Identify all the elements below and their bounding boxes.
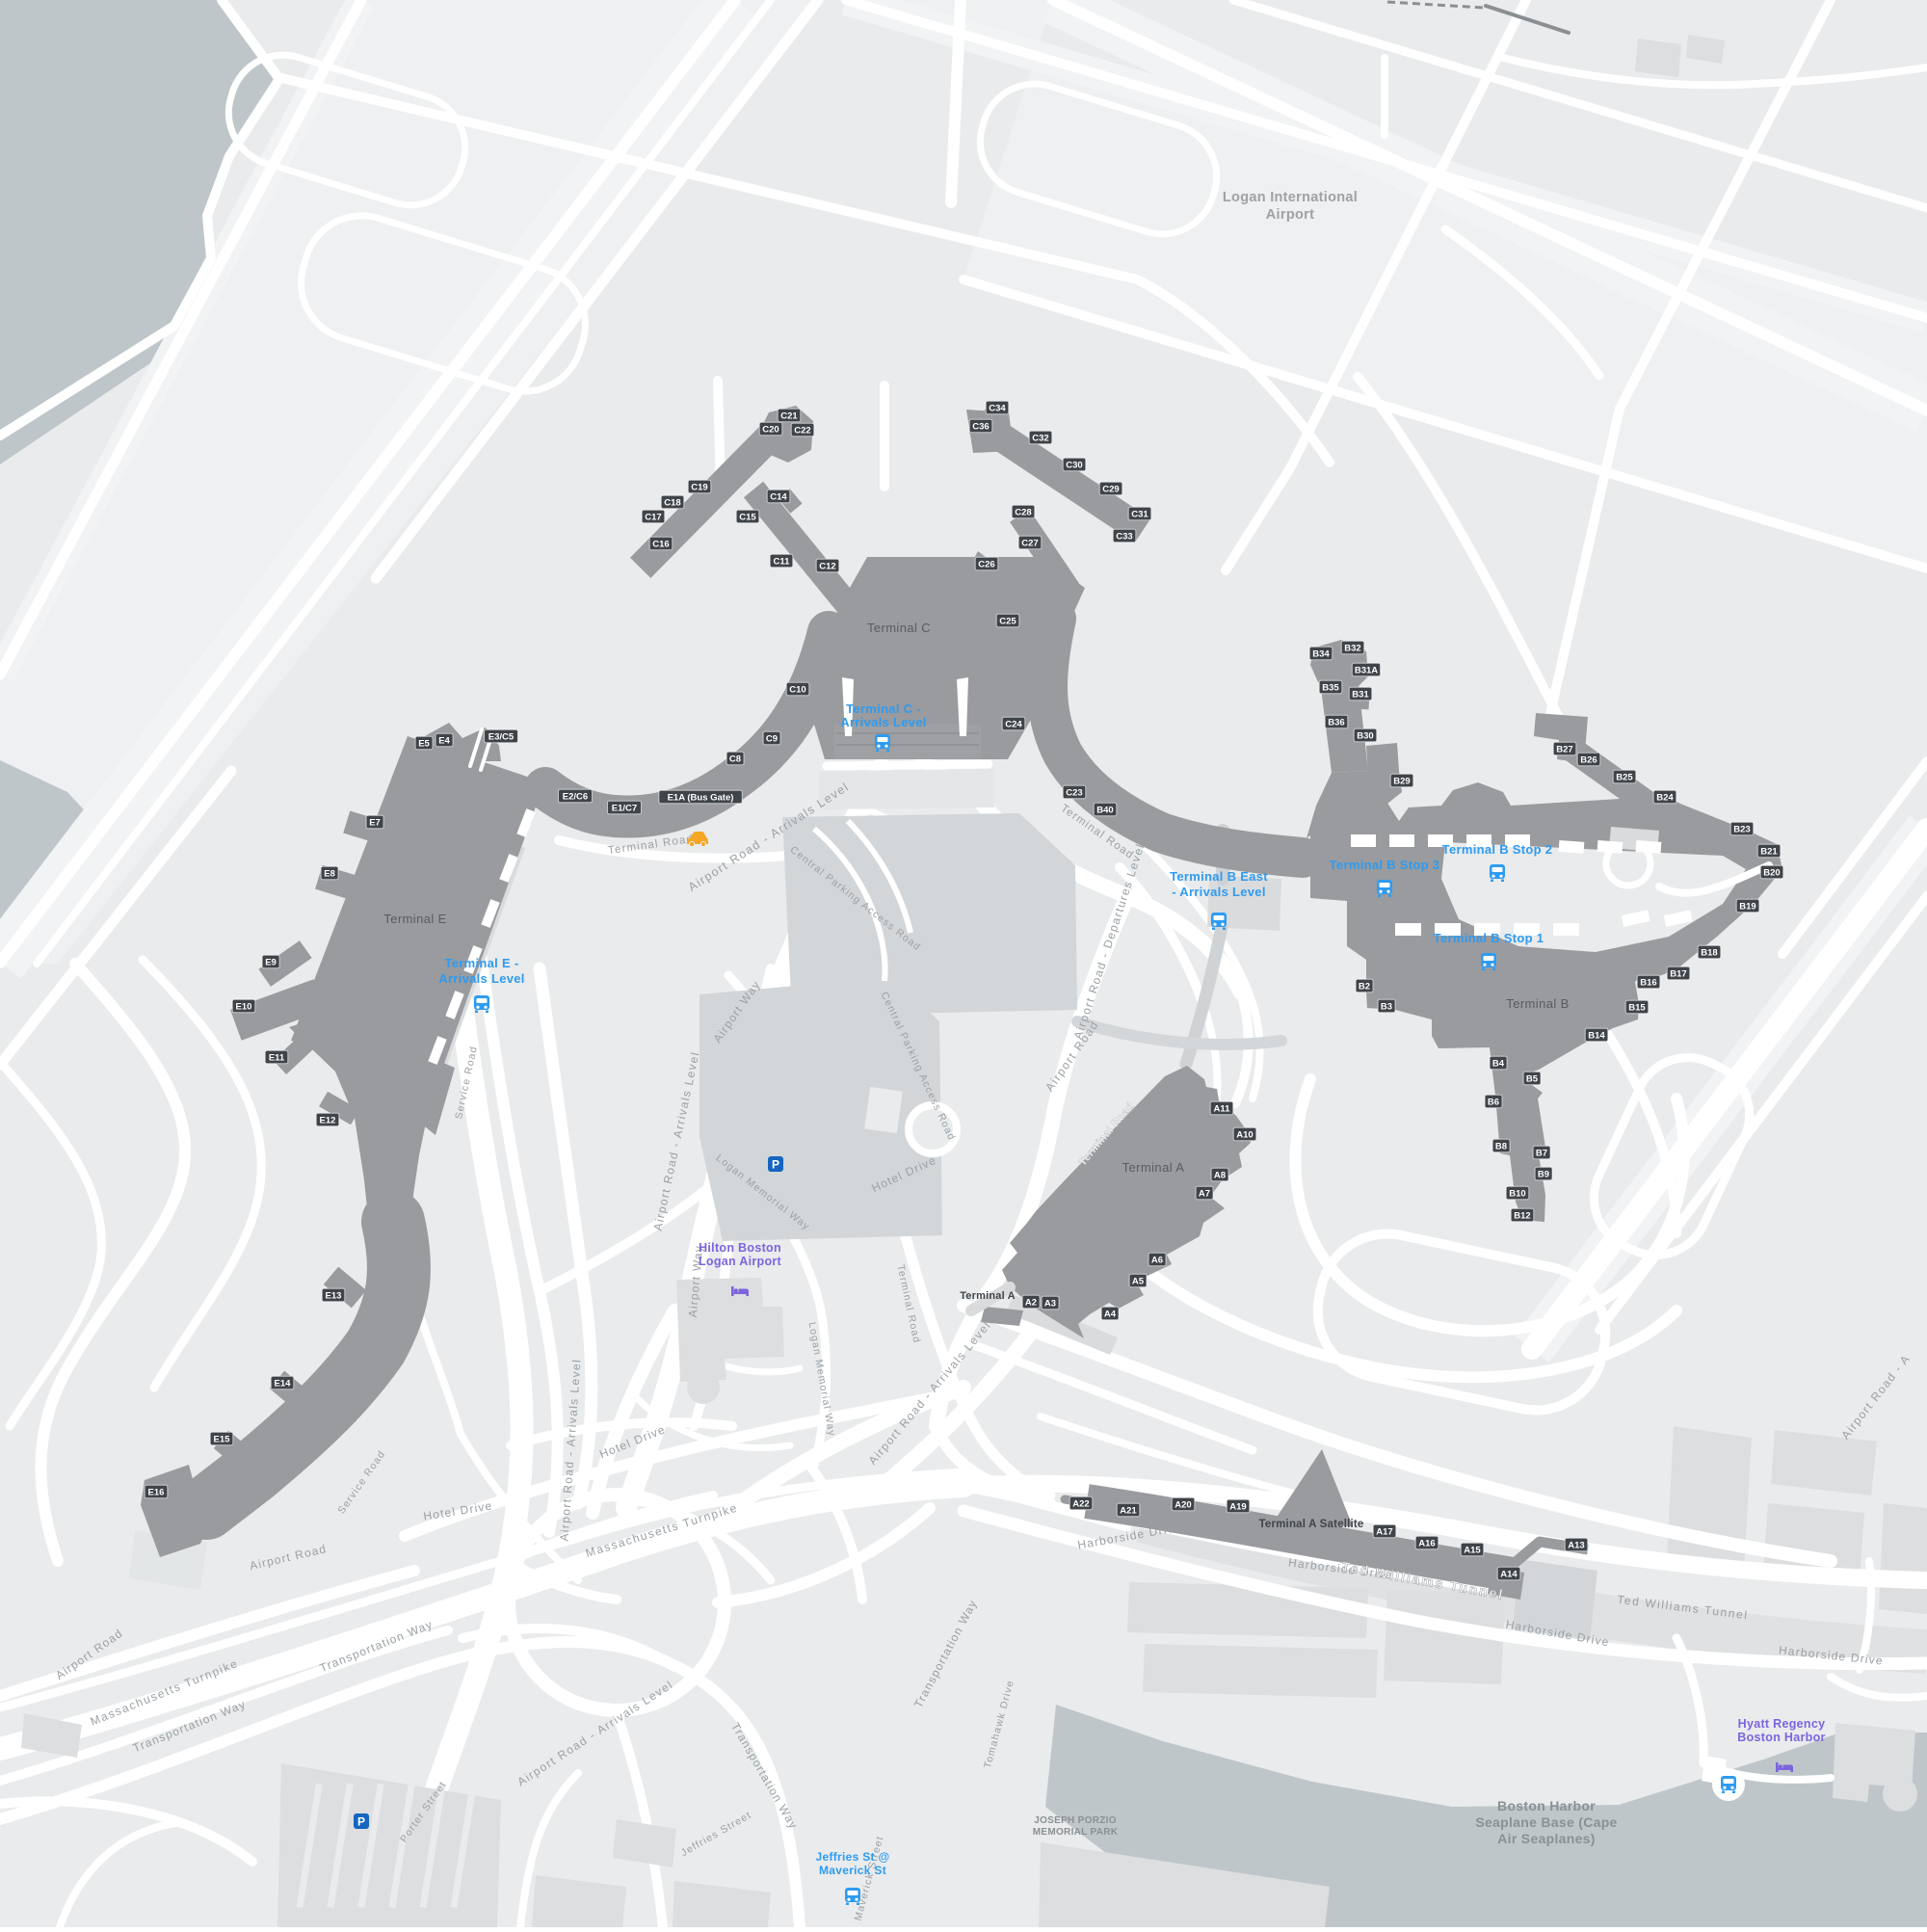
svg-text:B27: B27 — [1556, 744, 1572, 754]
svg-text:B40: B40 — [1096, 805, 1113, 815]
svg-text:B6: B6 — [1488, 1097, 1499, 1107]
svg-text:C27: C27 — [1021, 538, 1038, 548]
svg-text:B29: B29 — [1393, 776, 1410, 786]
svg-text:C10: C10 — [789, 684, 805, 695]
svg-text:A19: A19 — [1229, 1501, 1246, 1512]
svg-text:A2: A2 — [1025, 1297, 1037, 1308]
svg-text:Terminal B Stop 3: Terminal B Stop 3 — [1330, 858, 1440, 872]
svg-text:E10: E10 — [236, 1001, 252, 1012]
svg-text:B16: B16 — [1640, 977, 1656, 988]
svg-text:A17: A17 — [1376, 1526, 1392, 1537]
svg-text:C8: C8 — [729, 754, 741, 764]
svg-text:B7: B7 — [1536, 1148, 1547, 1158]
svg-text:C14: C14 — [770, 491, 787, 502]
svg-text:Seaplane Base (Cape: Seaplane Base (Cape — [1475, 1814, 1617, 1830]
svg-text:B31A: B31A — [1355, 665, 1378, 675]
svg-text:B23: B23 — [1733, 824, 1750, 834]
svg-text:Airport: Airport — [1266, 207, 1314, 223]
svg-text:A15: A15 — [1464, 1545, 1481, 1555]
svg-text:B19: B19 — [1739, 901, 1755, 912]
svg-text:A10: A10 — [1236, 1129, 1253, 1140]
svg-text:A3: A3 — [1044, 1298, 1056, 1309]
svg-text:- Arrivals Level: - Arrivals Level — [1172, 885, 1266, 899]
svg-text:C19: C19 — [691, 482, 707, 492]
svg-text:C15: C15 — [739, 512, 756, 522]
svg-text:B3: B3 — [1381, 1001, 1392, 1012]
svg-text:E1/C7: E1/C7 — [612, 803, 637, 813]
svg-text:C23: C23 — [1066, 787, 1082, 798]
svg-text:C32: C32 — [1032, 433, 1048, 443]
svg-text:Logan Airport: Logan Airport — [699, 1255, 782, 1268]
svg-text:B10: B10 — [1509, 1188, 1525, 1199]
svg-text:B36: B36 — [1328, 717, 1344, 728]
svg-text:A20: A20 — [1175, 1499, 1191, 1510]
svg-text:Terminal A: Terminal A — [1122, 1160, 1185, 1175]
svg-text:Hyatt Regency: Hyatt Regency — [1738, 1717, 1826, 1731]
svg-text:A4: A4 — [1104, 1309, 1117, 1319]
svg-text:Maverick St: Maverick St — [819, 1864, 886, 1877]
svg-text:E7: E7 — [369, 817, 381, 828]
svg-text:C26: C26 — [978, 559, 994, 569]
svg-text:Terminal A: Terminal A — [960, 1290, 1016, 1302]
svg-text:A13: A13 — [1568, 1540, 1584, 1550]
svg-text:B24: B24 — [1656, 792, 1674, 803]
svg-text:Terminal E -: Terminal E - — [444, 956, 518, 970]
svg-text:B4: B4 — [1492, 1058, 1505, 1069]
svg-text:Air Seaplanes): Air Seaplanes) — [1497, 1831, 1595, 1846]
svg-text:C31: C31 — [1131, 509, 1148, 519]
svg-text:B9: B9 — [1538, 1169, 1549, 1179]
svg-text:E4: E4 — [438, 735, 450, 746]
svg-text:E14: E14 — [275, 1378, 292, 1389]
svg-text:A8: A8 — [1214, 1170, 1226, 1180]
svg-text:E9: E9 — [265, 957, 277, 967]
svg-text:B21: B21 — [1760, 846, 1778, 857]
svg-text:Terminal B Stop 2: Terminal B Stop 2 — [1442, 842, 1553, 857]
svg-text:A16: A16 — [1418, 1538, 1435, 1548]
svg-text:C18: C18 — [664, 497, 680, 508]
svg-text:Arrivals Level: Arrivals Level — [840, 715, 926, 729]
svg-text:Boston Harbor: Boston Harbor — [1497, 1798, 1596, 1813]
svg-text:B17: B17 — [1670, 968, 1686, 979]
svg-text:C9: C9 — [766, 733, 778, 744]
svg-text:Boston Harbor: Boston Harbor — [1737, 1731, 1825, 1744]
svg-text:Hilton Boston: Hilton Boston — [699, 1241, 781, 1255]
svg-text:E8: E8 — [324, 868, 335, 879]
svg-text:B2: B2 — [1359, 981, 1370, 992]
svg-text:Terminal E: Terminal E — [383, 912, 446, 926]
svg-text:C36: C36 — [972, 421, 989, 432]
svg-text:Terminal B East: Terminal B East — [1170, 869, 1268, 884]
svg-text:B31: B31 — [1352, 689, 1369, 700]
svg-text:C11: C11 — [774, 556, 791, 567]
svg-text:Logan International: Logan International — [1223, 190, 1358, 205]
svg-text:JOSEPH PORZIO: JOSEPH PORZIO — [1034, 1815, 1117, 1826]
svg-text:Arrivals Level: Arrivals Level — [438, 971, 524, 986]
svg-text:A6: A6 — [1151, 1255, 1163, 1265]
svg-text:E16: E16 — [148, 1487, 165, 1497]
svg-text:C21: C21 — [780, 410, 798, 421]
svg-text:P: P — [357, 1815, 365, 1829]
svg-text:B30: B30 — [1357, 730, 1373, 741]
svg-text:E3/C5: E3/C5 — [488, 731, 515, 742]
svg-text:E12: E12 — [320, 1115, 336, 1125]
svg-text:Terminal B: Terminal B — [1506, 996, 1569, 1011]
svg-text:B32: B32 — [1344, 643, 1360, 653]
svg-text:C24: C24 — [1005, 719, 1022, 729]
svg-text:C29: C29 — [1102, 484, 1119, 494]
svg-text:E5: E5 — [418, 738, 430, 749]
svg-text:Jeffries St @: Jeffries St @ — [816, 1850, 890, 1864]
svg-text:B34: B34 — [1312, 648, 1330, 659]
svg-text:E15: E15 — [214, 1434, 231, 1444]
svg-text:B8: B8 — [1495, 1141, 1507, 1151]
svg-text:C17: C17 — [645, 512, 661, 522]
svg-text:C25: C25 — [999, 616, 1016, 626]
svg-text:C33: C33 — [1116, 531, 1132, 542]
svg-text:B20: B20 — [1763, 867, 1780, 878]
svg-text:Terminal C -: Terminal C - — [846, 701, 921, 716]
svg-text:A21: A21 — [1120, 1505, 1137, 1516]
svg-text:C28: C28 — [1015, 507, 1031, 517]
svg-text:B35: B35 — [1322, 682, 1339, 693]
svg-text:B5: B5 — [1526, 1073, 1539, 1084]
svg-text:B18: B18 — [1701, 947, 1717, 958]
svg-text:C22: C22 — [794, 425, 810, 436]
svg-text:Terminal B Stop 1: Terminal B Stop 1 — [1434, 931, 1544, 945]
svg-text:A5: A5 — [1132, 1276, 1145, 1286]
svg-text:C20: C20 — [762, 424, 779, 435]
svg-text:B12: B12 — [1514, 1210, 1530, 1221]
svg-text:E1A (Bus Gate): E1A (Bus Gate) — [668, 792, 734, 803]
svg-text:A7: A7 — [1199, 1188, 1210, 1199]
svg-text:E11: E11 — [269, 1052, 285, 1063]
svg-text:C34: C34 — [989, 403, 1006, 413]
svg-text:A11: A11 — [1214, 1103, 1231, 1114]
svg-text:B15: B15 — [1628, 1002, 1646, 1013]
svg-text:C16: C16 — [652, 539, 669, 549]
svg-text:Terminal A Satellite: Terminal A Satellite — [1258, 1519, 1363, 1530]
svg-text:A14: A14 — [1500, 1569, 1518, 1579]
svg-text:E13: E13 — [326, 1290, 342, 1301]
svg-text:Terminal C: Terminal C — [867, 621, 931, 635]
svg-text:A22: A22 — [1072, 1498, 1089, 1509]
svg-text:B25: B25 — [1616, 772, 1633, 782]
svg-text:B14: B14 — [1588, 1030, 1605, 1041]
svg-text:E2/C6: E2/C6 — [563, 791, 588, 802]
svg-text:C30: C30 — [1066, 460, 1082, 470]
svg-text:C12: C12 — [819, 561, 835, 571]
svg-text:B26: B26 — [1580, 754, 1597, 765]
svg-text:MEMORIAL PARK: MEMORIAL PARK — [1033, 1827, 1119, 1838]
svg-text:P: P — [772, 1158, 779, 1172]
